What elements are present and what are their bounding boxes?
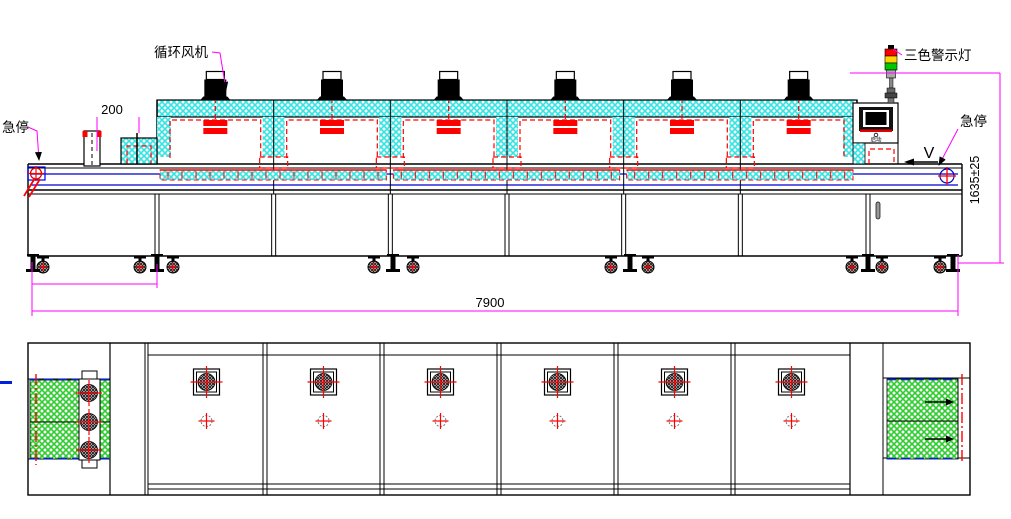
emergency-stop-left-device	[24, 166, 45, 197]
cabinet-dividers	[155, 194, 880, 256]
estop-left-leader	[28, 127, 39, 160]
tower-light-green	[885, 63, 897, 70]
tower-light-yellow	[885, 56, 897, 63]
plan-outfeed	[883, 374, 970, 464]
direction-label: V	[924, 145, 935, 162]
caster-wheel	[934, 256, 946, 273]
circulation-fan-top-view	[542, 366, 574, 398]
plan-view	[0, 343, 970, 495]
cooling-fans	[76, 380, 102, 463]
oven-belt-segment	[627, 170, 853, 180]
circulation-fan-motor	[550, 72, 580, 101]
centerline-stub	[0, 381, 12, 384]
circulation-fan-motor	[200, 72, 230, 101]
circulation-fan-label: 循环风机	[154, 45, 208, 60]
heater-element	[437, 120, 461, 126]
engineering-drawing-canvas: 启动 V	[0, 0, 1011, 519]
circulation-fan-motor	[434, 72, 464, 101]
caster-wheel	[407, 256, 419, 273]
oven-left-wall	[157, 117, 171, 157]
caster-wheel	[605, 256, 617, 273]
heater-element	[787, 128, 811, 134]
heater-element	[203, 120, 227, 126]
direction-arrow: V	[904, 145, 938, 166]
caster-wheel	[642, 256, 654, 273]
heater-element	[203, 128, 227, 134]
cabinet-door-handle	[876, 202, 880, 219]
heater-element	[787, 120, 811, 126]
circulation-fan-top-view	[308, 366, 340, 398]
heater-element	[320, 120, 344, 126]
caster-wheel	[134, 256, 146, 273]
overall-length-dim-text: 7900	[476, 295, 505, 310]
estop-right-leader	[939, 129, 958, 165]
circulation-fan-top-view	[425, 366, 457, 398]
overall-height-dim-text: 1635±25	[968, 156, 982, 205]
circulation-fan-motor	[317, 72, 347, 101]
heater-element	[670, 128, 694, 134]
heater-element	[553, 128, 577, 134]
exit-opening	[869, 149, 894, 164]
heater-element	[670, 120, 694, 126]
caster-wheel	[846, 256, 858, 273]
tunnel-oven-drawing: 启动 V	[0, 0, 1011, 519]
circulation-fan-motor	[784, 72, 814, 101]
heater-element	[320, 128, 344, 134]
start-button-label: 启动	[870, 136, 882, 144]
caster-wheel	[876, 256, 888, 273]
caster-wheel	[368, 256, 380, 273]
entry-offset-dim-text: 200	[101, 102, 123, 117]
plan-infeed-cooling	[0, 371, 110, 468]
estop-right-label: 急停	[960, 113, 987, 129]
elevation-view: 启动 V	[24, 45, 962, 273]
heater-element	[553, 120, 577, 126]
oven-belt-segment	[393, 170, 619, 180]
warning-light-label: 三色警示灯	[904, 47, 972, 63]
oven-belt-segment	[160, 170, 386, 180]
outfeed-mesh-belt	[887, 379, 958, 459]
circulation-fan-top-view	[191, 366, 223, 398]
emergency-stop-right-device	[938, 167, 956, 185]
control-panel: 启动	[853, 103, 898, 164]
heater-element	[437, 128, 461, 134]
circulation-fan-top-view	[776, 366, 808, 398]
circulation-fan-top-view	[659, 366, 691, 398]
estop-left-label: 急停	[2, 119, 29, 135]
entrance-vestibule	[121, 138, 157, 164]
circulation-fan-motor	[667, 72, 697, 101]
tower-light	[885, 45, 897, 103]
mesh-belt-segments	[160, 170, 853, 180]
casters-and-feet	[26, 254, 960, 273]
plan-frame	[28, 343, 970, 495]
caster-wheel	[167, 256, 179, 273]
